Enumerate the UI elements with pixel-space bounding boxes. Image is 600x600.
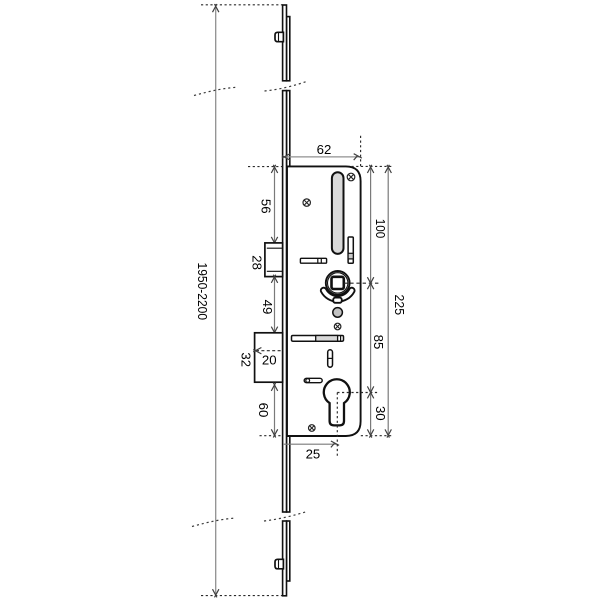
svg-text:60: 60 (256, 403, 271, 418)
svg-text:1950-2200: 1950-2200 (195, 263, 210, 321)
svg-text:225: 225 (392, 295, 407, 316)
svg-text:20: 20 (262, 353, 277, 368)
svg-text:32: 32 (239, 352, 254, 367)
svg-text:30: 30 (373, 406, 388, 421)
svg-text:85: 85 (371, 335, 386, 350)
svg-text:56: 56 (258, 199, 273, 214)
svg-text:25: 25 (306, 446, 321, 461)
svg-text:28: 28 (250, 255, 265, 270)
svg-text:62: 62 (317, 142, 332, 157)
svg-text:100: 100 (373, 219, 388, 239)
svg-text:49: 49 (260, 300, 275, 315)
